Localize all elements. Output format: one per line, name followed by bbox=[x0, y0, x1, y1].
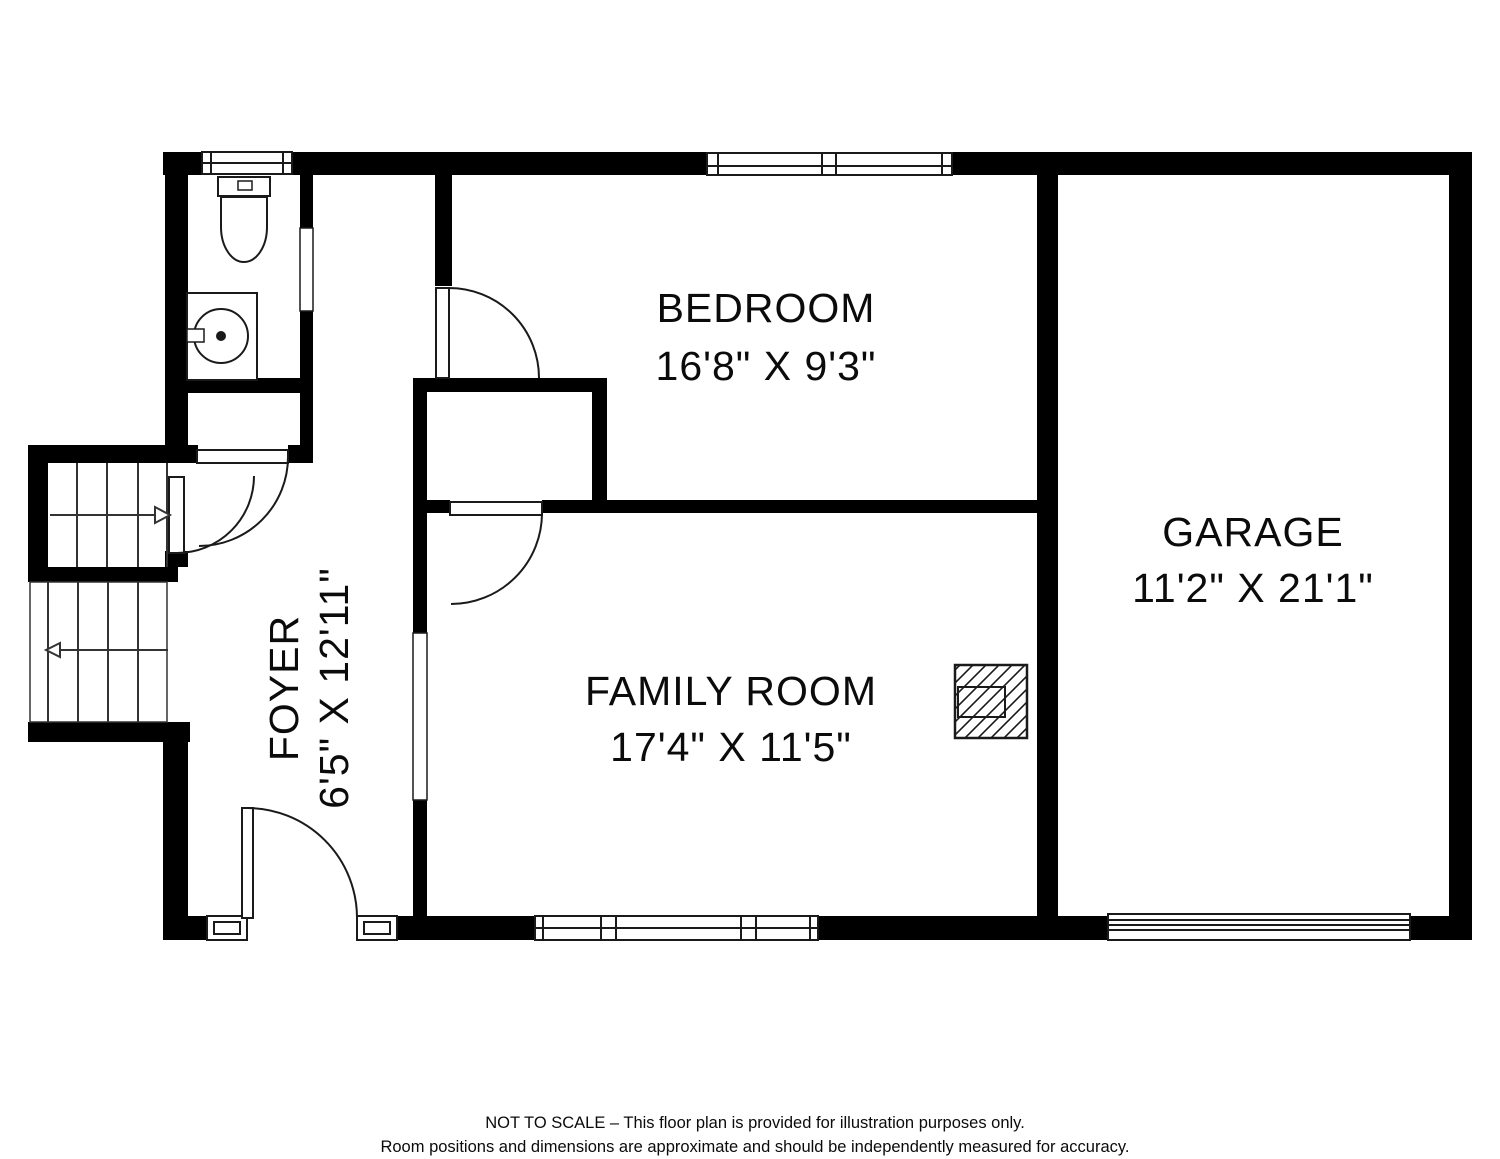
wall-segment bbox=[817, 916, 1109, 940]
disclaimer: NOT TO SCALE – This floor plan is provid… bbox=[380, 1114, 1129, 1156]
wall-segment bbox=[951, 152, 1472, 175]
disclaimer-line-2: Room positions and dimensions are approx… bbox=[380, 1138, 1129, 1156]
room-dims-bedroom: 16'8" X 9'3" bbox=[656, 343, 877, 389]
closet-door-icon bbox=[197, 450, 288, 546]
bathroom-door-opening bbox=[300, 228, 313, 311]
fireplace-hearth bbox=[955, 665, 1027, 738]
staircase-lower-run bbox=[30, 582, 168, 722]
bathroom-fixtures bbox=[187, 177, 270, 380]
room-dims-foyer: 6'5" X 12'11" bbox=[311, 567, 357, 809]
wall-segment bbox=[291, 152, 709, 175]
entry-door-icon bbox=[242, 808, 357, 918]
wall-segment bbox=[28, 567, 178, 582]
wall-segment bbox=[413, 378, 607, 392]
family-room-door-icon bbox=[450, 502, 542, 604]
stair-door-icon bbox=[169, 476, 254, 553]
disclaimer-line-1: NOT TO SCALE – This floor plan is provid… bbox=[485, 1114, 1025, 1132]
room-label-family-room: FAMILY ROOM bbox=[585, 668, 877, 714]
family-room-window-icon bbox=[535, 916, 818, 940]
wall-segment bbox=[413, 378, 427, 633]
wall-segment bbox=[1037, 152, 1058, 940]
fireplace-icon bbox=[955, 665, 1027, 738]
room-label-foyer: FOYER bbox=[261, 615, 307, 761]
wall-segment bbox=[165, 152, 188, 462]
wall-segment bbox=[427, 500, 450, 513]
room-label-garage: GARAGE bbox=[1162, 509, 1343, 555]
wall-segment bbox=[28, 722, 190, 742]
floor-plan-drawing: BEDROOM 16'8" X 9'3" GARAGE 11'2" X 21'1… bbox=[0, 0, 1500, 1159]
toilet-icon bbox=[218, 177, 270, 262]
staircase bbox=[30, 463, 170, 722]
wall-segment bbox=[28, 445, 48, 582]
wall-segment bbox=[300, 152, 313, 228]
bedroom-door-icon bbox=[436, 288, 539, 378]
wall-segment bbox=[1449, 152, 1472, 940]
sink-vanity-icon bbox=[187, 293, 257, 380]
bathroom-window-icon bbox=[202, 152, 292, 174]
room-label-bedroom: BEDROOM bbox=[657, 285, 876, 331]
wall-segment bbox=[413, 800, 427, 940]
wall-segment bbox=[300, 393, 313, 463]
wall-segment bbox=[163, 722, 188, 940]
wall-segment bbox=[1409, 916, 1472, 940]
wall-segment bbox=[592, 378, 607, 513]
room-labels: BEDROOM 16'8" X 9'3" GARAGE 11'2" X 21'1… bbox=[261, 285, 1374, 809]
room-dims-family-room: 17'4" X 11'5" bbox=[610, 724, 852, 770]
wall-segment bbox=[28, 445, 198, 463]
entry-sidelight-right-icon bbox=[357, 916, 397, 940]
wall-segment bbox=[435, 152, 452, 286]
entry-sidelight-left-icon bbox=[207, 916, 247, 940]
room-dims-garage: 11'2" X 21'1" bbox=[1132, 565, 1374, 611]
foyer-cased-opening bbox=[413, 633, 427, 800]
wall-segment bbox=[542, 500, 1042, 513]
bedroom-window-icon bbox=[707, 153, 952, 175]
wall-segment bbox=[300, 311, 313, 378]
staircase-upper-run bbox=[50, 463, 170, 567]
garage-door-icon bbox=[1108, 914, 1410, 940]
floor-plan-canvas: BEDROOM 16'8" X 9'3" GARAGE 11'2" X 21'1… bbox=[0, 0, 1500, 1159]
